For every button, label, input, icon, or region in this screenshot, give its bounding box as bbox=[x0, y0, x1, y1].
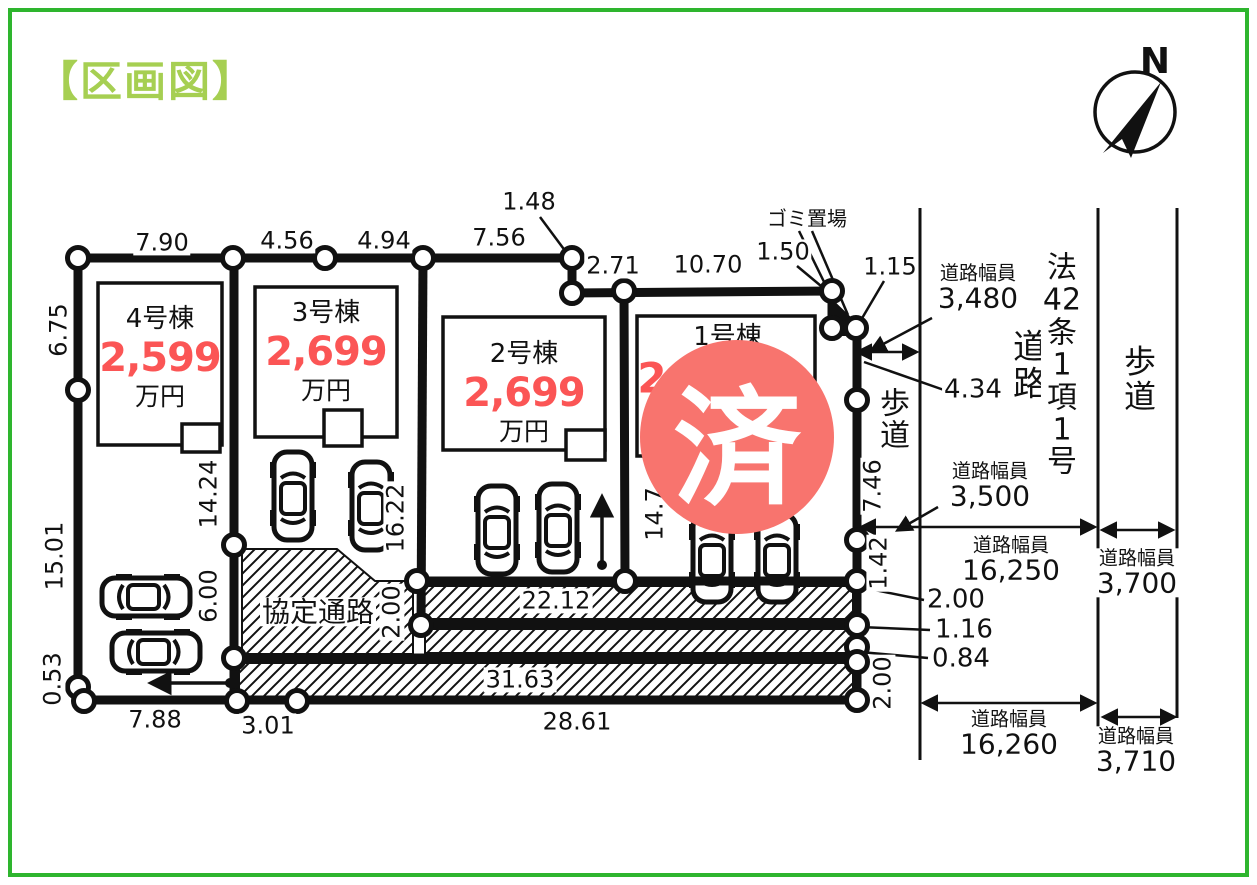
lot-2-name: 2号棟 bbox=[490, 341, 559, 367]
lot-3-name: 3号棟 bbox=[292, 300, 361, 326]
dim-leader-200: 2.00 bbox=[925, 586, 987, 613]
dim-left-2: 15.01 bbox=[42, 520, 67, 593]
road-width-3500: 道路幅員3,500 bbox=[948, 461, 1032, 510]
dim-right-746: 7.46 bbox=[860, 457, 885, 514]
dim-strip-3163: 31.63 bbox=[484, 667, 557, 692]
dim-bottom-3: 28.61 bbox=[541, 709, 614, 734]
road-width-3710: 道路幅員3,710 bbox=[1094, 726, 1178, 775]
sold-stamp: 済 bbox=[640, 340, 834, 534]
garbage-label: ゴミ置場 bbox=[765, 209, 849, 230]
dim-strip-200: 2.00 bbox=[379, 583, 404, 640]
road-width-3700: 道路幅員3,700 bbox=[1095, 548, 1179, 597]
lot-4-label: 4号棟 2,599 万円 bbox=[98, 306, 222, 409]
dim-top-5: 1.48 bbox=[500, 189, 557, 214]
lot-3-label: 3号棟 2,699 万円 bbox=[255, 300, 397, 403]
dim-top-8: 1.50 bbox=[754, 239, 811, 264]
lot-3-unit: 万円 bbox=[301, 378, 351, 403]
lot-2-unit: 万円 bbox=[499, 419, 549, 444]
dim-lot4-depth: 14.24 bbox=[196, 458, 221, 531]
annotation-layer: 7.904.564.947.561.482.7110.701.501.15ゴミ置… bbox=[0, 0, 1257, 885]
compass-n-label: N bbox=[1138, 43, 1172, 81]
dim-bottom-2: 3.01 bbox=[239, 713, 296, 738]
road-law-label: 法42条1項1号 bbox=[1041, 253, 1083, 480]
lot-2-price: 2,699 bbox=[463, 371, 585, 415]
lot-2-label: 2号棟 2,699 万円 bbox=[443, 341, 605, 444]
dim-top-1: 7.90 bbox=[133, 230, 190, 255]
dim-434: 4.34 bbox=[942, 376, 1004, 403]
lot-4-price: 2,599 bbox=[99, 336, 221, 380]
plot-map-page: 【区画図】 bbox=[0, 0, 1257, 885]
dim-right-142: 1.42 bbox=[866, 534, 891, 591]
sidewalk-label-right: 歩道 bbox=[1122, 344, 1158, 413]
dim-top-9: 1.15 bbox=[861, 254, 918, 279]
road-width-16250: 道路幅員16,250 bbox=[960, 535, 1062, 584]
dim-top-2: 4.56 bbox=[258, 228, 315, 253]
dim-bottom-1: 7.88 bbox=[126, 707, 183, 732]
dim-leader-116: 1.16 bbox=[933, 616, 995, 643]
page-title: 【区画図】 bbox=[36, 48, 256, 109]
dim-top-3: 4.94 bbox=[355, 228, 412, 253]
dim-top-6: 2.71 bbox=[584, 253, 641, 278]
dim-left-3: 0.53 bbox=[40, 650, 65, 707]
road-width-3480: 道路幅員3,480 bbox=[936, 263, 1020, 312]
dim-top-4: 7.56 bbox=[470, 225, 527, 250]
road-width-16260: 道路幅員16,260 bbox=[958, 709, 1060, 758]
lot-4-unit: 万円 bbox=[135, 384, 185, 409]
lot-3-price: 2,699 bbox=[265, 330, 387, 374]
dim-strip-2212: 22.12 bbox=[520, 588, 593, 613]
dim-right-200: 2.00 bbox=[870, 654, 895, 711]
dim-leader-084: 0.84 bbox=[930, 645, 992, 672]
passage-label: 協定通路 bbox=[260, 597, 376, 626]
sidewalk-label-inner: 歩道 bbox=[878, 389, 912, 454]
dim-top-7: 10.70 bbox=[672, 252, 745, 277]
dim-left-1: 6.75 bbox=[46, 301, 71, 358]
dim-lot3-depth: 16.22 bbox=[383, 482, 408, 555]
lot-4-name: 4号棟 bbox=[126, 306, 195, 332]
dim-lot4-6: 6.00 bbox=[196, 567, 221, 624]
